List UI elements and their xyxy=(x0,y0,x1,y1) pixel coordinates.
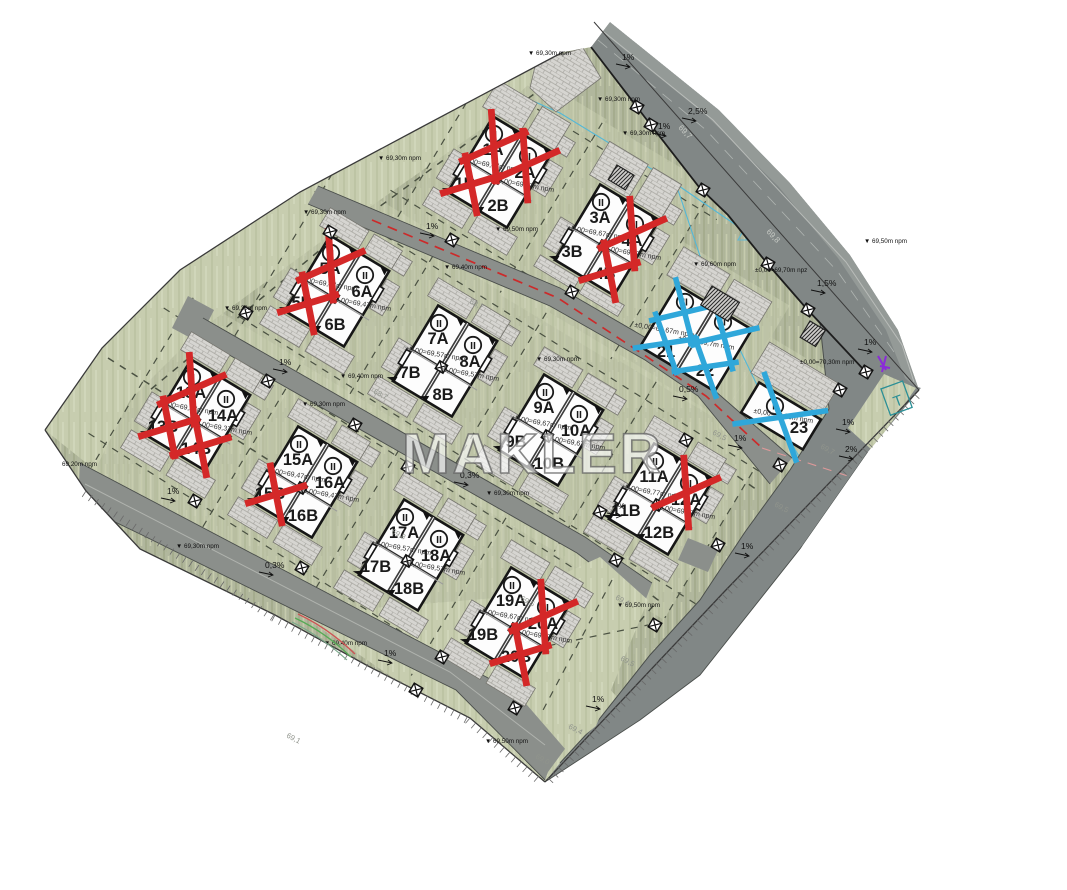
svg-text:18B: 18B xyxy=(394,580,424,598)
svg-text:1%: 1% xyxy=(734,433,747,443)
svg-text:1%: 1% xyxy=(167,486,180,496)
svg-text:9A: 9A xyxy=(533,399,554,417)
svg-text:▼ 69,30m npm: ▼ 69,30m npm xyxy=(486,490,529,497)
svg-text:7A: 7A xyxy=(427,330,448,348)
svg-text:2,5%: 2,5% xyxy=(688,106,708,116)
svg-text:▼ 69,50m npm: ▼ 69,50m npm xyxy=(864,238,907,245)
svg-text:1%: 1% xyxy=(741,541,754,551)
svg-text:1%: 1% xyxy=(658,121,671,131)
svg-text:1,5%: 1,5% xyxy=(817,278,837,288)
svg-text:II: II xyxy=(576,409,582,421)
svg-text:±0,00=69,70m npz: ±0,00=69,70m npz xyxy=(755,267,807,274)
svg-text:▼ 69,30m npm: ▼ 69,30m npm xyxy=(597,96,640,103)
svg-text:1%: 1% xyxy=(384,648,397,658)
svg-text:69,20m npm: 69,20m npm xyxy=(62,461,97,468)
svg-text:II: II xyxy=(598,197,604,209)
svg-text:7B: 7B xyxy=(399,364,420,382)
svg-text:II: II xyxy=(542,387,548,399)
svg-text:2B: 2B xyxy=(487,197,508,215)
svg-text:II: II xyxy=(296,439,302,451)
svg-text:II: II xyxy=(362,270,368,282)
svg-text:3A: 3A xyxy=(589,209,610,227)
svg-text:1%: 1% xyxy=(592,694,605,704)
svg-text:MAKLER: MAKLER xyxy=(402,422,664,486)
svg-text:6B: 6B xyxy=(324,316,345,334)
svg-text:II: II xyxy=(330,461,336,473)
svg-text:1%: 1% xyxy=(622,52,635,62)
svg-text:1%: 1% xyxy=(842,417,855,427)
svg-text:12B: 12B xyxy=(644,524,674,542)
svg-text:▼ 69,30m npm: ▼ 69,30m npm xyxy=(224,305,267,312)
svg-text:16B: 16B xyxy=(288,507,318,525)
svg-text:▼ 69,40m npm: ▼ 69,40m npm xyxy=(444,264,487,271)
svg-text:▼ 69,30m npm: ▼ 69,30m npm xyxy=(176,543,219,550)
svg-text:II: II xyxy=(223,394,229,406)
svg-text:II: II xyxy=(436,534,442,546)
svg-text:±0,00=70,30m npm: ±0,00=70,30m npm xyxy=(800,359,854,366)
svg-text:0,5%: 0,5% xyxy=(679,384,699,394)
svg-text:2%: 2% xyxy=(845,444,858,454)
svg-text:II: II xyxy=(509,580,515,592)
svg-text:19B: 19B xyxy=(468,626,498,644)
svg-text:▼ 69,30m npm: ▼ 69,30m npm xyxy=(378,155,421,162)
svg-text:▼ 69,60m npm: ▼ 69,60m npm xyxy=(693,261,736,268)
svg-text:3B: 3B xyxy=(561,243,582,261)
svg-text:▼ 69,30m npm: ▼ 69,30m npm xyxy=(622,130,665,137)
svg-text:1%: 1% xyxy=(613,501,626,511)
svg-text:▼ 69,30m npm: ▼ 69,30m npm xyxy=(536,356,579,363)
svg-text:1%: 1% xyxy=(279,357,292,367)
svg-text:15A: 15A xyxy=(283,451,313,469)
svg-text:8B: 8B xyxy=(432,386,453,404)
svg-text:1%: 1% xyxy=(426,221,439,231)
svg-text:II: II xyxy=(436,318,442,330)
svg-text:▼ 69,30m npm: ▼ 69,30m npm xyxy=(303,209,346,216)
svg-text:▼ 69,50m npm: ▼ 69,50m npm xyxy=(485,738,528,745)
svg-text:0,3%: 0,3% xyxy=(265,560,285,570)
svg-text:II: II xyxy=(402,512,408,524)
svg-text:▼ 69,40m npm: ▼ 69,40m npm xyxy=(340,373,383,380)
svg-text:1%: 1% xyxy=(864,337,877,347)
svg-text:▼ 69,30m npm: ▼ 69,30m npm xyxy=(528,50,571,57)
svg-text:17B: 17B xyxy=(361,558,391,576)
svg-text:▼ 69,50m npm: ▼ 69,50m npm xyxy=(495,226,538,233)
svg-text:▼ 69,30m npm: ▼ 69,30m npm xyxy=(302,401,345,408)
svg-text:II: II xyxy=(470,340,476,352)
